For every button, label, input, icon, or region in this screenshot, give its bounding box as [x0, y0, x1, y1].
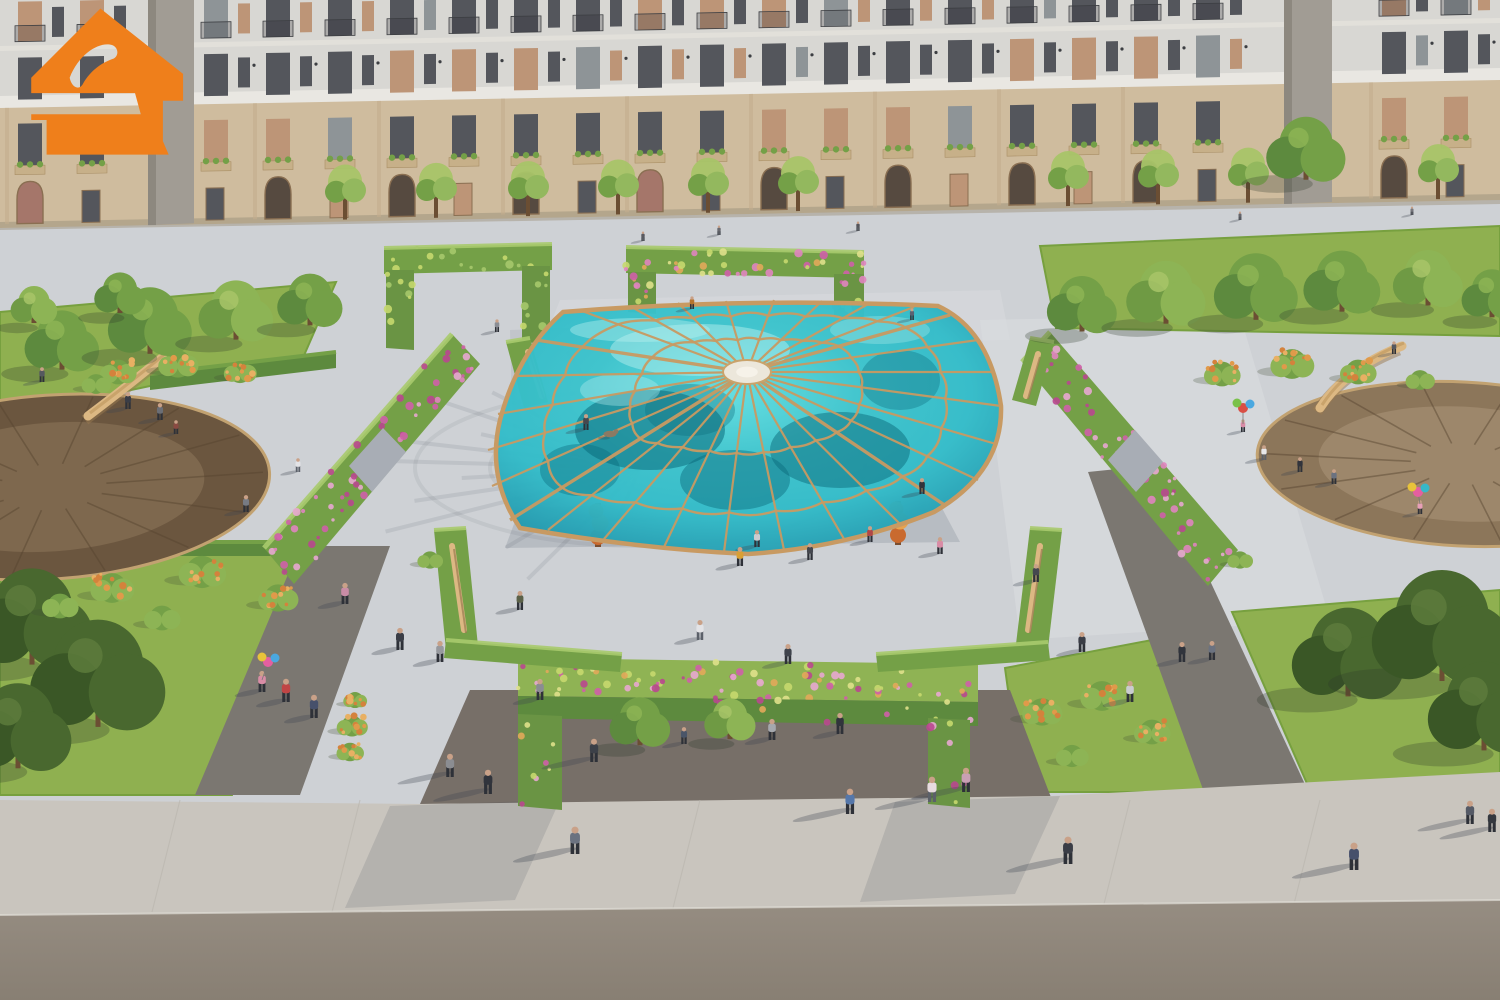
person-leg: [243, 505, 245, 512]
bush-flower: [1361, 360, 1366, 365]
flower: [674, 261, 678, 265]
window-small: [548, 52, 560, 82]
pilaster: [253, 103, 257, 219]
person-head: [1239, 212, 1241, 214]
window-small: [920, 45, 932, 75]
house-logo-icon: [12, 5, 185, 162]
person-head: [1034, 564, 1039, 569]
bush-flower: [1351, 374, 1358, 381]
flower: [636, 678, 641, 683]
flower: [378, 423, 385, 430]
person-leg: [643, 237, 644, 241]
person-leg: [282, 692, 285, 702]
flower: [817, 678, 822, 683]
flower: [386, 282, 392, 288]
person-head: [1467, 801, 1473, 807]
person-body: [1488, 814, 1496, 823]
person-body: [1126, 686, 1134, 694]
flower: [1204, 559, 1209, 564]
tree-shadow: [1393, 742, 1494, 767]
flower: [328, 469, 334, 475]
tree-shadow: [1188, 315, 1264, 334]
balcony-rail: [759, 11, 789, 28]
flower: [427, 253, 434, 260]
person-leg: [967, 781, 970, 792]
tree-highlight: [1323, 623, 1352, 652]
person-head: [1392, 341, 1395, 344]
person-body: [867, 530, 873, 536]
flower: [301, 509, 305, 513]
bush-foliage: [161, 610, 180, 629]
tree-highlight: [1478, 278, 1494, 294]
flower: [520, 664, 525, 669]
flower: [947, 740, 953, 746]
flower: [328, 483, 334, 489]
flower: [580, 680, 587, 687]
person-body: [717, 228, 720, 232]
flower: [1064, 405, 1072, 413]
person-leg: [1466, 814, 1469, 824]
bush-flower: [351, 712, 358, 719]
flower: [824, 719, 831, 726]
person-head: [1079, 632, 1084, 637]
flower: [291, 525, 298, 532]
window-small: [548, 0, 560, 28]
bush-flower: [129, 357, 136, 364]
balcony-rail: [201, 22, 231, 39]
person-leg: [176, 428, 178, 434]
person-leg: [1033, 574, 1035, 582]
window: [886, 41, 910, 83]
hedge-top-light: [434, 528, 466, 530]
person-head: [447, 754, 453, 760]
bush-flower: [1212, 376, 1219, 383]
flower: [944, 699, 950, 705]
bush-flower: [340, 728, 343, 731]
window-small: [1478, 34, 1490, 64]
tree-highlight: [1325, 261, 1345, 281]
person-leg: [246, 505, 248, 512]
tree-shadow: [1371, 302, 1434, 318]
flower: [384, 305, 392, 313]
window-small: [362, 1, 374, 31]
bush-flower: [193, 574, 200, 581]
flower: [1179, 525, 1186, 532]
bush-flower: [1209, 366, 1216, 373]
facade-group: [0, 0, 1500, 228]
person-leg: [769, 731, 772, 740]
flower: [724, 270, 731, 277]
person-leg: [451, 767, 454, 777]
bush-foliage: [1227, 555, 1240, 568]
person-body: [1178, 646, 1185, 654]
balcony-rail: [697, 12, 727, 29]
bush-flower: [117, 593, 124, 600]
flower: [603, 681, 611, 689]
person-leg: [298, 466, 300, 472]
person-body: [590, 744, 598, 753]
person-leg: [1394, 348, 1396, 354]
flower: [1225, 548, 1232, 555]
flower: [874, 685, 881, 692]
person-leg: [446, 767, 449, 777]
bush-flower: [351, 744, 355, 748]
flower: [820, 251, 828, 259]
bush-flower: [214, 571, 220, 577]
bush-flower: [188, 578, 193, 583]
flower: [1173, 477, 1177, 481]
bush-flower: [218, 563, 223, 568]
tree-shadow: [78, 312, 124, 323]
bush-flower: [1232, 370, 1236, 374]
tree-highlight: [24, 292, 36, 304]
balloon: [1246, 400, 1255, 409]
flower: [1083, 374, 1088, 379]
flower: [274, 548, 277, 551]
flower: [461, 345, 465, 349]
canopy-layer: [488, 300, 1001, 554]
window-small: [1044, 0, 1056, 18]
brand-logo-watermark: [12, 5, 185, 162]
bush-foliage: [59, 598, 78, 617]
person-leg: [1183, 653, 1186, 662]
flower: [884, 711, 890, 717]
flower: [385, 272, 390, 277]
balcony-rail: [1131, 4, 1161, 21]
flower: [1171, 492, 1174, 495]
bush-flower: [278, 592, 283, 597]
arched-door: [265, 177, 291, 219]
person-leg: [1064, 852, 1068, 864]
person-head: [40, 367, 44, 371]
bush-foliage: [144, 611, 162, 629]
flower: [691, 671, 699, 679]
person-leg: [910, 315, 912, 320]
person-body: [690, 299, 695, 304]
window: [638, 46, 662, 88]
person-leg: [841, 725, 844, 734]
bush-flower: [1347, 375, 1351, 379]
balcony-rail: [1441, 0, 1471, 15]
person-head: [584, 414, 588, 418]
house-logo-shape: [31, 9, 183, 155]
flower: [861, 261, 866, 266]
flower: [505, 260, 513, 268]
person-leg: [858, 227, 859, 231]
bush-flower: [1290, 357, 1293, 360]
flower: [849, 262, 854, 267]
flower: [418, 265, 422, 269]
flower: [531, 773, 537, 779]
arched-door: [1381, 156, 1407, 198]
balcony-rail: [945, 8, 975, 25]
bush-flower: [170, 355, 177, 362]
person-leg: [1420, 508, 1422, 514]
person-head: [718, 226, 720, 228]
balcony-rail: [387, 18, 417, 35]
person-head: [785, 644, 790, 649]
person-leg: [940, 547, 942, 554]
person-leg: [933, 791, 936, 802]
person-head: [1350, 843, 1357, 850]
window-small: [610, 50, 622, 80]
person-leg: [856, 227, 857, 231]
window: [1196, 35, 1220, 77]
person-leg: [1131, 693, 1134, 702]
person-body: [1297, 461, 1302, 467]
bush-flower: [1304, 354, 1311, 361]
window: [390, 50, 414, 92]
arched-door: [389, 174, 415, 216]
flower: [1063, 393, 1070, 400]
flower: [1168, 479, 1172, 483]
pilaster: [377, 101, 381, 217]
bush-flower: [111, 361, 115, 365]
person-leg: [521, 602, 524, 610]
bush-flower: [285, 603, 289, 607]
bush-flower: [1290, 360, 1295, 365]
flower: [650, 671, 656, 677]
balcony-rail: [449, 17, 479, 34]
bush-flower: [127, 586, 132, 591]
person-head: [682, 727, 686, 731]
flower: [594, 688, 601, 695]
flower: [1052, 353, 1059, 360]
person-head: [571, 827, 578, 834]
bush-flower: [188, 360, 195, 367]
flower: [1117, 437, 1122, 442]
person-head: [174, 420, 178, 424]
flower: [668, 261, 671, 264]
person-head: [1210, 641, 1215, 646]
person-leg: [174, 428, 176, 434]
person-body: [737, 551, 744, 559]
flower: [1093, 435, 1098, 440]
window-small: [858, 46, 870, 76]
tree-highlight: [68, 638, 103, 673]
flower: [543, 760, 549, 766]
bush-flower: [1162, 724, 1166, 728]
window-small: [858, 0, 870, 22]
hedge-top-light: [1030, 528, 1062, 530]
flower: [433, 379, 440, 386]
bush-flower: [354, 724, 360, 730]
person-head: [1332, 469, 1336, 473]
person-leg: [571, 842, 575, 854]
flower: [759, 706, 766, 713]
bush-flower: [360, 701, 366, 707]
person-leg: [846, 803, 849, 814]
window-small: [1044, 42, 1056, 72]
bush-flower: [186, 363, 189, 366]
bush-flower: [1233, 379, 1236, 382]
person-body: [1063, 843, 1073, 854]
person-head: [311, 695, 317, 701]
person-head: [857, 222, 859, 224]
bush-flower: [271, 592, 278, 599]
person-body: [243, 499, 249, 506]
person-body: [125, 396, 131, 403]
window-small: [610, 0, 622, 27]
tree-foliage: [1423, 268, 1463, 308]
person-leg: [867, 535, 869, 542]
balcony-rail: [1007, 7, 1037, 24]
flower: [340, 495, 344, 499]
person-head: [642, 232, 644, 234]
flower: [819, 672, 824, 677]
person-body: [1331, 473, 1336, 479]
window-small: [796, 0, 808, 23]
flower: [1178, 550, 1186, 558]
flower: [353, 481, 359, 487]
bush-flower: [121, 376, 125, 380]
person-leg: [641, 237, 642, 241]
person-body: [446, 759, 454, 768]
flower: [1148, 496, 1156, 504]
person-leg: [741, 558, 744, 566]
flower: [750, 670, 758, 678]
person-leg: [586, 423, 588, 430]
bush-flower: [354, 702, 358, 706]
bush-flower: [1155, 732, 1159, 736]
flower: [314, 495, 318, 499]
window: [1072, 38, 1096, 80]
flower: [1160, 512, 1166, 518]
flower: [1075, 364, 1082, 371]
person-leg: [287, 692, 290, 702]
bush-flower: [104, 584, 111, 591]
person-head: [126, 392, 130, 396]
flower: [736, 668, 744, 676]
flower: [414, 413, 418, 417]
flower: [624, 267, 628, 271]
flower: [838, 673, 845, 680]
bush-flower: [289, 586, 292, 589]
arched-door: [637, 170, 663, 212]
person-head: [495, 319, 498, 322]
window: [1134, 36, 1158, 78]
flower: [700, 262, 707, 269]
person-leg: [684, 737, 686, 744]
tree-shadow: [1, 366, 68, 383]
person-head: [397, 628, 403, 634]
balloon: [1421, 484, 1430, 493]
person-leg: [692, 303, 694, 309]
bush-flower: [1033, 705, 1039, 711]
person-head: [847, 789, 853, 795]
tree-shadow: [257, 323, 316, 338]
person-leg: [437, 653, 440, 662]
flower: [805, 265, 809, 269]
flower: [1103, 443, 1108, 448]
window: [576, 47, 600, 89]
bush-flower: [182, 354, 189, 361]
flower: [621, 672, 628, 679]
flower: [445, 350, 451, 356]
person-leg: [1392, 348, 1394, 354]
person-leg: [590, 752, 593, 762]
person-body: [768, 724, 776, 732]
tree-highlight: [219, 291, 238, 310]
bush-flower: [1105, 686, 1111, 692]
person-head: [158, 403, 162, 407]
flower: [503, 255, 508, 260]
flower: [826, 683, 833, 690]
person-leg: [1209, 652, 1212, 660]
flower: [520, 323, 527, 330]
flower: [340, 509, 344, 513]
person-leg: [1127, 693, 1130, 702]
person-leg: [40, 376, 42, 382]
window: [328, 51, 352, 93]
person-leg: [576, 842, 580, 854]
tree-foliage: [306, 290, 343, 327]
render-viewport: [0, 0, 1500, 1000]
pilaster: [1121, 87, 1125, 203]
tree-shadow: [1241, 175, 1312, 193]
bush-flower: [1161, 718, 1167, 724]
flower: [524, 722, 530, 728]
flower: [432, 404, 438, 410]
tree-highlight: [1412, 260, 1430, 278]
person-head: [920, 478, 924, 482]
flower: [521, 302, 529, 310]
flower: [360, 492, 368, 500]
person-head: [738, 547, 743, 552]
window-small: [982, 0, 994, 20]
flower: [918, 693, 922, 697]
person-leg: [810, 553, 812, 560]
bush-foliage: [82, 378, 96, 392]
person-leg: [690, 303, 692, 309]
bush-flower: [1048, 700, 1054, 706]
tree-highlight: [45, 321, 64, 340]
flower: [443, 355, 451, 363]
flower: [959, 688, 965, 694]
tree-highlight: [1148, 272, 1168, 292]
bush-flower: [225, 370, 228, 373]
window-small: [300, 56, 312, 86]
person-body: [583, 418, 589, 424]
person-leg: [346, 595, 349, 604]
flower: [1084, 387, 1092, 395]
flower: [518, 733, 525, 740]
flower: [450, 248, 457, 255]
bush-flower: [1218, 360, 1223, 365]
bush-flower: [1282, 364, 1287, 369]
bush-foliage: [430, 554, 443, 567]
tree-highlight: [295, 283, 312, 300]
person-leg: [1418, 508, 1420, 514]
glass-tree-silhouette: [540, 444, 620, 496]
flower: [719, 248, 727, 256]
person-head: [808, 543, 812, 547]
flower: [1161, 489, 1169, 497]
window-small: [1478, 0, 1490, 10]
flower: [560, 675, 568, 683]
flower: [907, 682, 913, 688]
person-leg: [541, 691, 544, 700]
bush-flower: [212, 559, 217, 564]
person-leg: [263, 683, 266, 692]
bush-flower: [1230, 361, 1235, 366]
bush-flower: [345, 714, 351, 720]
bush-flower: [99, 573, 102, 576]
flower: [695, 665, 702, 672]
tree-foliage: [116, 285, 145, 314]
person-leg: [922, 487, 924, 494]
person-leg: [737, 558, 740, 566]
